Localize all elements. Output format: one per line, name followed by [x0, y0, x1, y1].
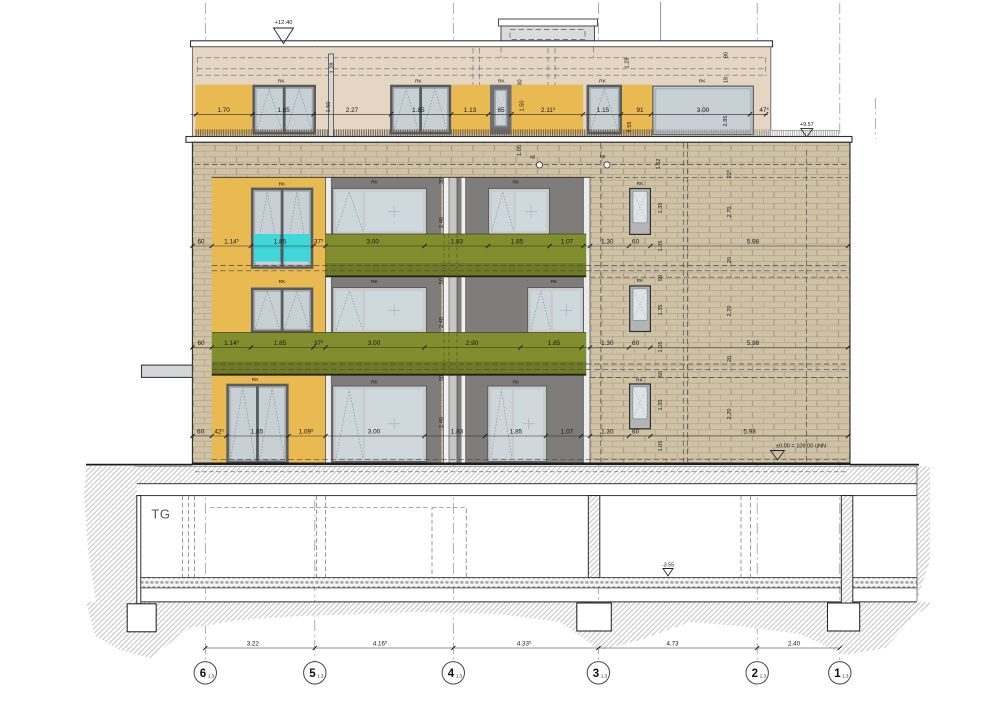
- svg-text:RK: RK: [415, 78, 422, 84]
- svg-text:1.30: 1.30: [601, 340, 614, 347]
- svg-text:RK: RK: [599, 78, 606, 84]
- svg-text:1.85: 1.85: [251, 429, 264, 436]
- svg-text:+12.40: +12.40: [275, 20, 293, 26]
- svg-text:1.35: 1.35: [658, 203, 664, 214]
- svg-text:2.40: 2.40: [439, 417, 445, 428]
- svg-text:1: 1: [834, 668, 841, 680]
- svg-text:65: 65: [497, 107, 505, 114]
- svg-text:2.70: 2.70: [727, 409, 733, 420]
- svg-text:1.50: 1.50: [520, 101, 526, 112]
- svg-text:3.22: 3.22: [247, 641, 260, 648]
- svg-text:4: 4: [448, 668, 455, 680]
- svg-text:1.3: 1.3: [317, 673, 324, 678]
- svg-text:1.85: 1.85: [511, 239, 524, 246]
- svg-text:4.73: 4.73: [666, 641, 679, 648]
- svg-text:2: 2: [752, 668, 758, 680]
- svg-text:RK: RK: [550, 279, 557, 285]
- svg-text:80: 80: [724, 52, 730, 58]
- svg-text:5.98: 5.98: [747, 340, 760, 347]
- svg-text:3.00: 3.00: [368, 429, 381, 436]
- svg-text:20: 20: [727, 356, 733, 362]
- svg-text:50: 50: [439, 375, 445, 381]
- svg-text:2.40: 2.40: [439, 317, 445, 328]
- svg-text:RK: RK: [512, 380, 519, 386]
- svg-text:1.28: 1.28: [625, 58, 631, 69]
- svg-text:5.98: 5.98: [743, 429, 756, 436]
- svg-text:RK: RK: [278, 78, 285, 84]
- svg-text:30: 30: [518, 79, 524, 85]
- svg-text:60: 60: [197, 429, 205, 436]
- svg-text:-3.55: -3.55: [662, 563, 674, 569]
- svg-text:1.3: 1.3: [760, 673, 767, 678]
- svg-text:6: 6: [200, 668, 206, 680]
- svg-text:60: 60: [632, 239, 640, 246]
- svg-text:1.3: 1.3: [601, 673, 608, 678]
- svg-text:1.35: 1.35: [658, 400, 664, 411]
- svg-text:RK: RK: [371, 279, 378, 285]
- svg-text:1.07: 1.07: [561, 239, 574, 246]
- svg-text:60: 60: [632, 340, 640, 347]
- svg-text:1.3: 1.3: [842, 673, 849, 678]
- svg-text:RK: RK: [371, 380, 378, 386]
- svg-text:1.05: 1.05: [658, 441, 664, 452]
- svg-text:1.85: 1.85: [277, 107, 290, 114]
- svg-text:2.70: 2.70: [727, 207, 733, 218]
- svg-text:1.13: 1.13: [464, 107, 477, 114]
- svg-text:18: 18: [724, 77, 730, 83]
- svg-text:±0.00 = 109.00 üNN: ±0.00 = 109.00 üNN: [776, 444, 826, 450]
- svg-text:1.85: 1.85: [412, 107, 425, 114]
- svg-text:1.85: 1.85: [274, 239, 287, 246]
- svg-text:1.35: 1.35: [658, 305, 664, 316]
- svg-text:RK: RK: [279, 279, 286, 285]
- svg-text:1.3: 1.3: [208, 673, 215, 678]
- svg-text:1.28: 1.28: [329, 63, 335, 74]
- svg-text:2.27: 2.27: [346, 107, 359, 114]
- svg-text:1.83: 1.83: [451, 429, 464, 436]
- svg-text:1.05: 1.05: [658, 342, 664, 353]
- svg-text:1.30: 1.30: [601, 239, 614, 246]
- svg-text:60: 60: [197, 239, 205, 246]
- svg-text:60: 60: [632, 429, 640, 436]
- svg-text:1.30: 1.30: [601, 429, 614, 436]
- svg-text:1.83: 1.83: [451, 239, 464, 246]
- svg-text:RK: RK: [636, 377, 643, 383]
- svg-text:1.05: 1.05: [517, 145, 523, 156]
- svg-text:RK: RK: [699, 78, 706, 84]
- svg-text:2.90: 2.90: [466, 340, 479, 347]
- svg-text:2.40: 2.40: [788, 641, 801, 648]
- svg-text:RK: RK: [371, 180, 378, 186]
- svg-text:RK: RK: [637, 181, 644, 187]
- svg-text:TG: TG: [151, 507, 170, 522]
- svg-text:1.3: 1.3: [456, 673, 463, 678]
- svg-text:2.40: 2.40: [439, 217, 445, 228]
- svg-text:1.15: 1.15: [597, 107, 610, 114]
- svg-text:91: 91: [636, 107, 644, 114]
- svg-text:50: 50: [658, 371, 664, 377]
- svg-text:RK: RK: [637, 278, 644, 284]
- svg-text:N8: N8: [600, 154, 606, 159]
- svg-text:2.85: 2.85: [723, 116, 729, 127]
- svg-text:2.55: 2.55: [627, 122, 633, 133]
- svg-text:3.00: 3.00: [697, 107, 710, 114]
- svg-text:1.52: 1.52: [656, 159, 662, 170]
- svg-text:5.98: 5.98: [747, 239, 760, 246]
- svg-text:RK: RK: [498, 78, 505, 84]
- svg-text:1.50: 1.50: [326, 102, 332, 113]
- svg-text:RK: RK: [279, 181, 286, 187]
- svg-text:3.00: 3.00: [368, 340, 381, 347]
- svg-text:N8: N8: [530, 154, 536, 159]
- svg-text:3.00: 3.00: [366, 239, 379, 246]
- svg-text:30: 30: [439, 178, 445, 184]
- svg-text:5: 5: [309, 668, 316, 680]
- svg-text:1.85: 1.85: [510, 429, 523, 436]
- svg-text:2.70: 2.70: [727, 306, 733, 317]
- svg-text:3: 3: [593, 668, 599, 680]
- svg-text:+9.57: +9.57: [800, 122, 814, 128]
- svg-text:1.85: 1.85: [548, 340, 561, 347]
- svg-text:20: 20: [727, 257, 733, 263]
- svg-text:1.70: 1.70: [217, 107, 230, 114]
- svg-text:50: 50: [658, 275, 664, 281]
- svg-text:1.07: 1.07: [561, 429, 574, 436]
- svg-text:60: 60: [197, 340, 205, 347]
- svg-text:50: 50: [439, 278, 445, 284]
- svg-text:1.85: 1.85: [274, 340, 287, 347]
- svg-text:RK: RK: [252, 377, 259, 383]
- svg-text:RK: RK: [512, 180, 519, 186]
